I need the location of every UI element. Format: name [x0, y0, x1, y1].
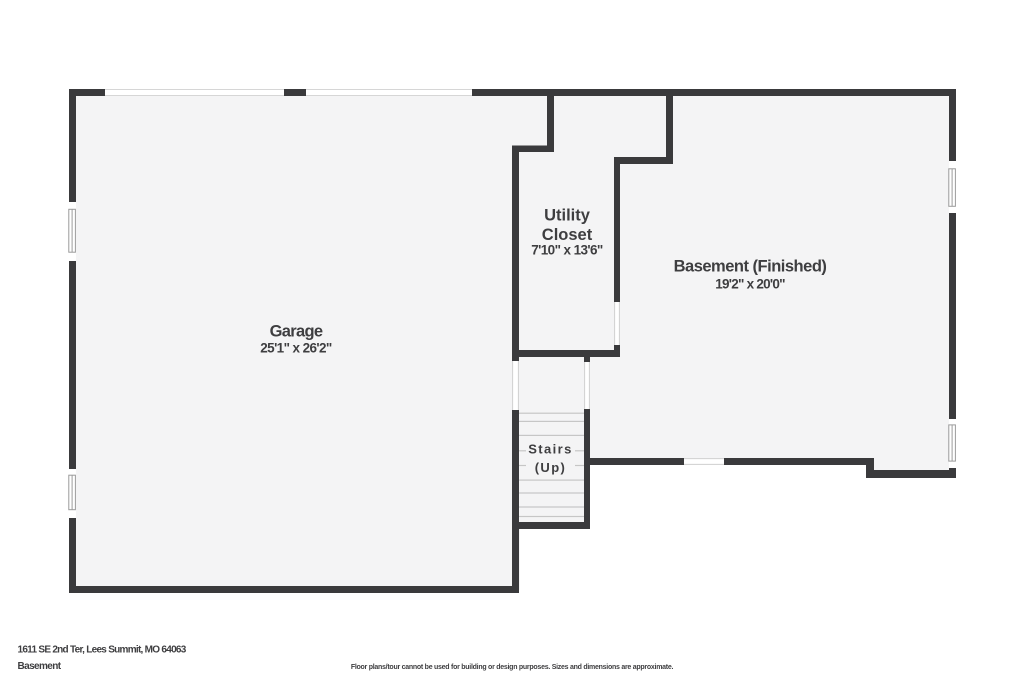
svg-text:Basement (Finished): Basement (Finished): [674, 258, 827, 276]
svg-text:(Up): (Up): [535, 460, 567, 475]
svg-text:25'1" x 26'2": 25'1" x 26'2": [260, 341, 332, 356]
svg-text:19'2" x 20'0": 19'2" x 20'0": [715, 277, 785, 292]
svg-text:Basement: Basement: [18, 661, 62, 672]
svg-text:Stairs: Stairs: [528, 442, 573, 457]
svg-text:Garage: Garage: [270, 323, 323, 341]
svg-text:1611 SE 2nd Ter, Lees Summit,: 1611 SE 2nd Ter, Lees Summit, MO 64063: [18, 645, 187, 656]
svg-text:Closet: Closet: [542, 226, 593, 244]
svg-text:7'10" x 13'6": 7'10" x 13'6": [531, 243, 603, 258]
svg-text:Utility: Utility: [544, 207, 591, 225]
svg-text:Floor plans/tour cannot be use: Floor plans/tour cannot be used for buil…: [351, 664, 674, 671]
